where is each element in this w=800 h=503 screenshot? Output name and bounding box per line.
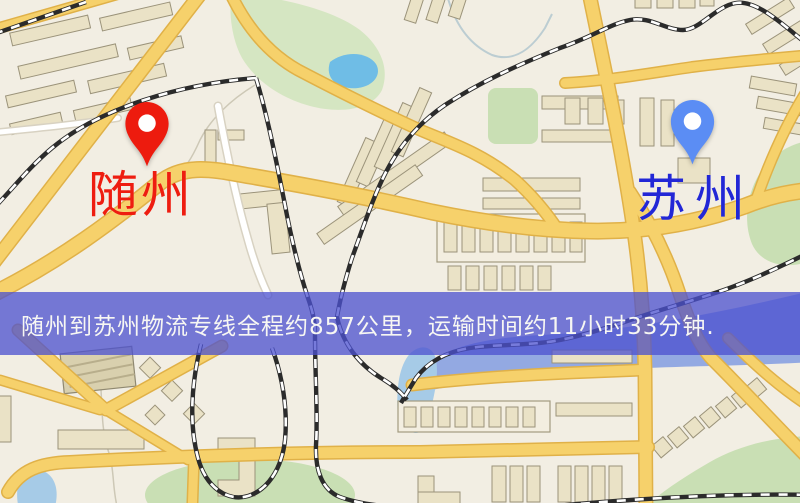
origin-pin-icon: [122, 100, 172, 170]
map-canvas: [0, 0, 800, 503]
logistics-route-map: 随州 苏州 随州到苏州物流专线全程约857公里，运输时间约11小时33分钟.: [0, 0, 800, 503]
route-info-banner: 随州到苏州物流专线全程约857公里，运输时间约11小时33分钟.: [0, 292, 800, 355]
origin-label: 随州: [88, 170, 194, 220]
route-info-text: 随州到苏州物流专线全程约857公里，运输时间约11小时33分钟.: [0, 307, 715, 341]
destination-pin-icon: [667, 98, 718, 168]
destination-label: 苏州: [636, 174, 754, 224]
